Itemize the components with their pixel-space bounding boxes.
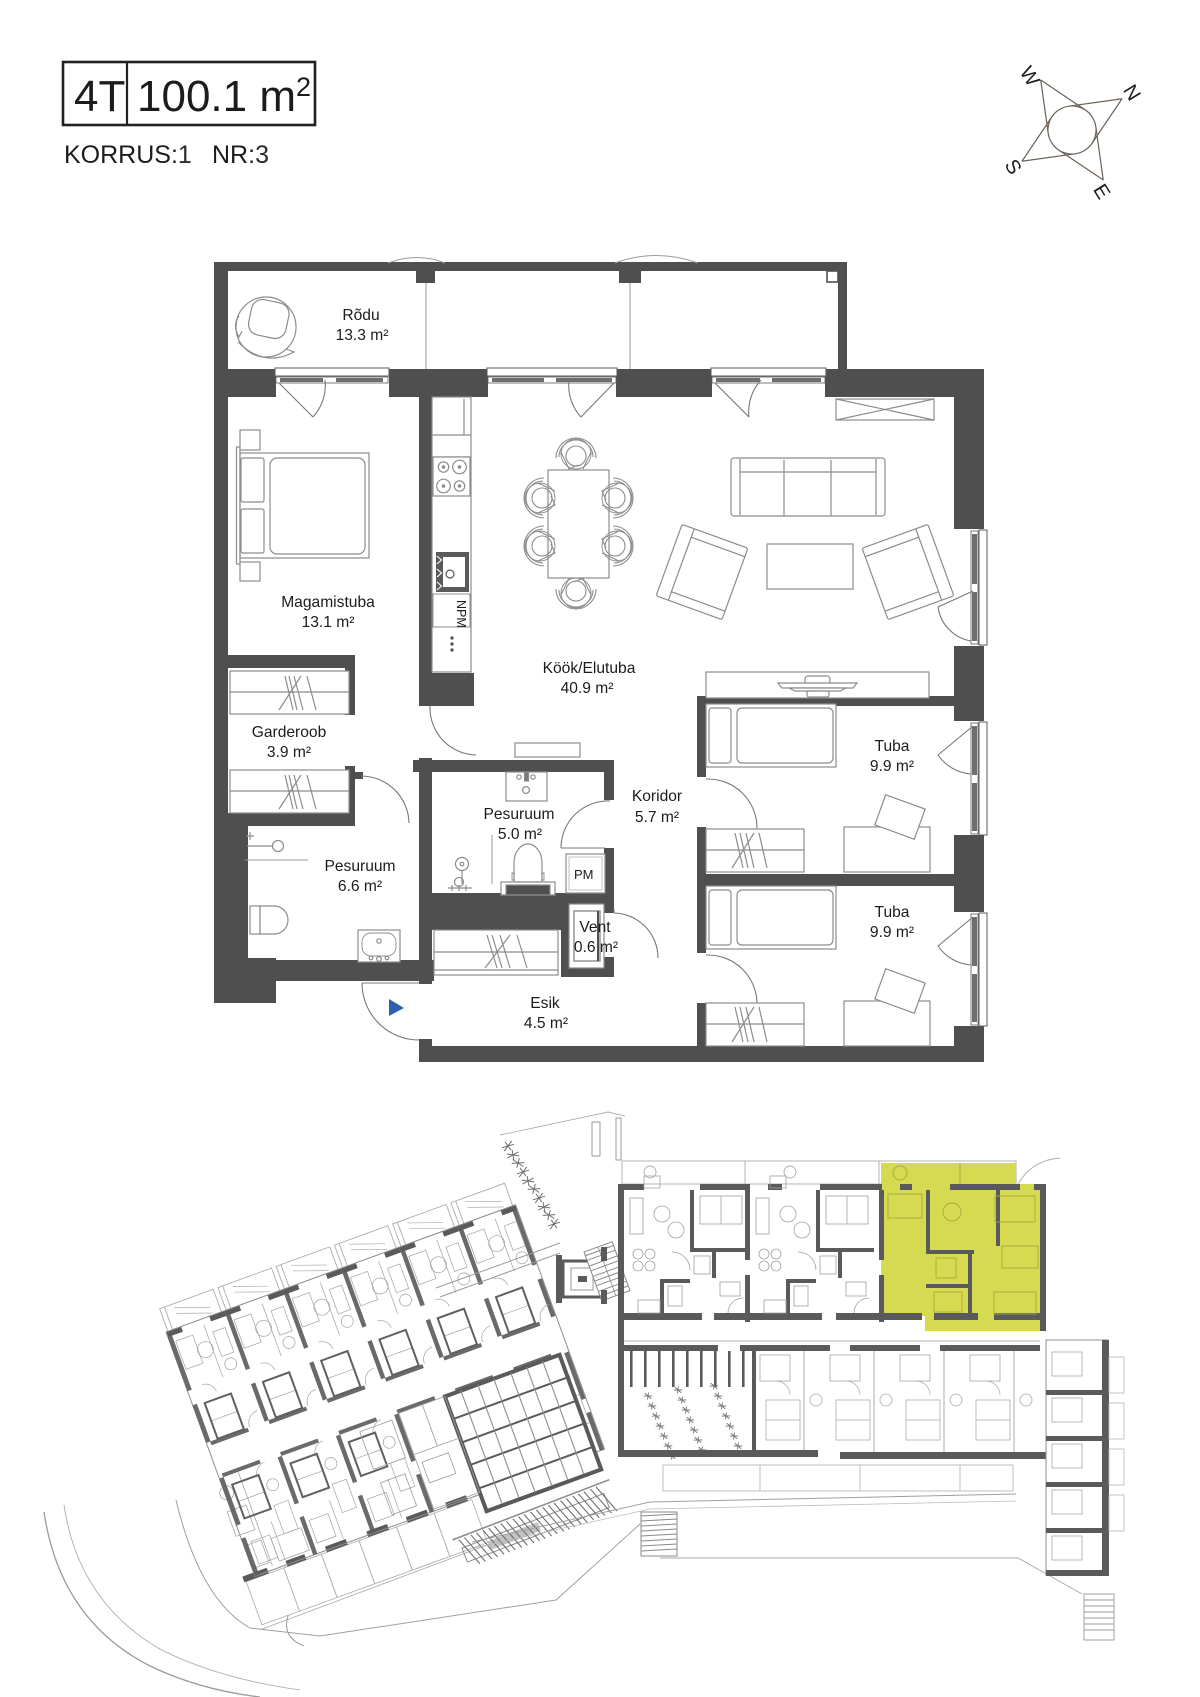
svg-text:Vent: Vent [579, 919, 611, 936]
svg-text:6.6 m²: 6.6 m² [338, 878, 382, 895]
svg-text:Pesuruum: Pesuruum [483, 806, 554, 823]
svg-text:3.9 m²: 3.9 m² [267, 744, 311, 761]
svg-text:4.5 m²: 4.5 m² [524, 1015, 568, 1032]
svg-text:E: E [1088, 180, 1114, 203]
svg-text:13.1 m²: 13.1 m² [302, 614, 355, 631]
svg-text:40.9 m²: 40.9 m² [561, 680, 614, 697]
svg-text:Magamistuba: Magamistuba [281, 594, 375, 611]
svg-text:Tuba: Tuba [875, 738, 910, 755]
svg-text:4T: 4T [74, 72, 125, 121]
svg-text:Tuba: Tuba [875, 904, 910, 921]
svg-text:0.6 m²: 0.6 m² [574, 939, 618, 956]
svg-text:Garderoob: Garderoob [252, 724, 327, 741]
svg-text:Köök/Elutuba: Köök/Elutuba [543, 660, 636, 677]
svg-text:9.9 m²: 9.9 m² [870, 924, 914, 941]
svg-text:5.7 m²: 5.7 m² [635, 809, 679, 826]
svg-text:Koridor: Koridor [632, 788, 682, 805]
svg-text:KORRUS:1: KORRUS:1 [64, 141, 192, 169]
svg-text:Rõdu: Rõdu [342, 307, 379, 324]
svg-text:S: S [1000, 156, 1026, 179]
svg-text:5.0 m²: 5.0 m² [498, 826, 542, 843]
svg-text:W: W [1015, 63, 1044, 91]
svg-text:N: N [1118, 81, 1144, 105]
svg-text:13.3 m²: 13.3 m² [336, 327, 389, 344]
svg-text:PM: PM [574, 867, 594, 882]
svg-text:Pesuruum: Pesuruum [324, 858, 395, 875]
svg-text:100.1 m2: 100.1 m2 [137, 72, 311, 121]
svg-text:9.9 m²: 9.9 m² [870, 758, 914, 775]
svg-text:NR:3: NR:3 [212, 141, 269, 169]
svg-text:NPM: NPM [454, 600, 468, 628]
svg-text:Esik: Esik [530, 995, 560, 1012]
